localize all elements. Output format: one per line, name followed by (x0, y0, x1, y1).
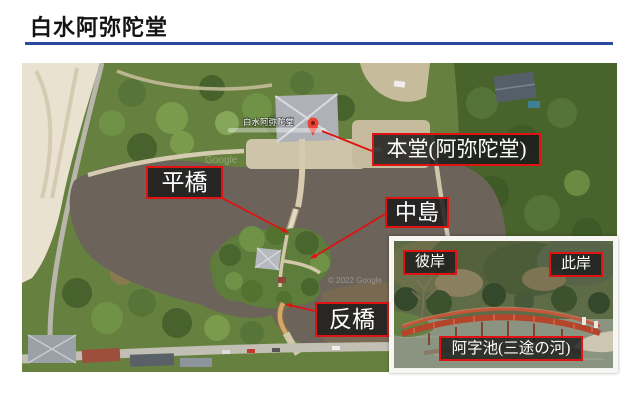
annotation-arched-bridge: 反橋 (315, 302, 389, 337)
copyright-watermark: © 2022 Google (328, 276, 382, 285)
annotation-near-shore: 此岸 (549, 252, 603, 277)
map-marker-label: 白水阿弥陀堂 (243, 117, 294, 127)
outbuilding (493, 71, 536, 102)
temple-forecourt (246, 139, 366, 169)
map-marker-caption (228, 128, 326, 133)
page-title: 白水阿弥陀堂 (30, 10, 168, 42)
annotation-pond-name: 阿字池(三途の河) (439, 336, 583, 361)
annotation-far-shore: 彼岸 (403, 250, 457, 275)
annotation-center-island: 中島 (385, 197, 449, 228)
annotation-flat-bridge: 平橋 (146, 166, 223, 199)
annotation-main-hall: 本堂(阿弥陀堂) (372, 133, 541, 166)
inset-photo: 彼岸 此岸 阿字池(三途の河) (389, 236, 618, 373)
google-watermark: Google (205, 155, 238, 166)
title-underline (25, 42, 613, 45)
